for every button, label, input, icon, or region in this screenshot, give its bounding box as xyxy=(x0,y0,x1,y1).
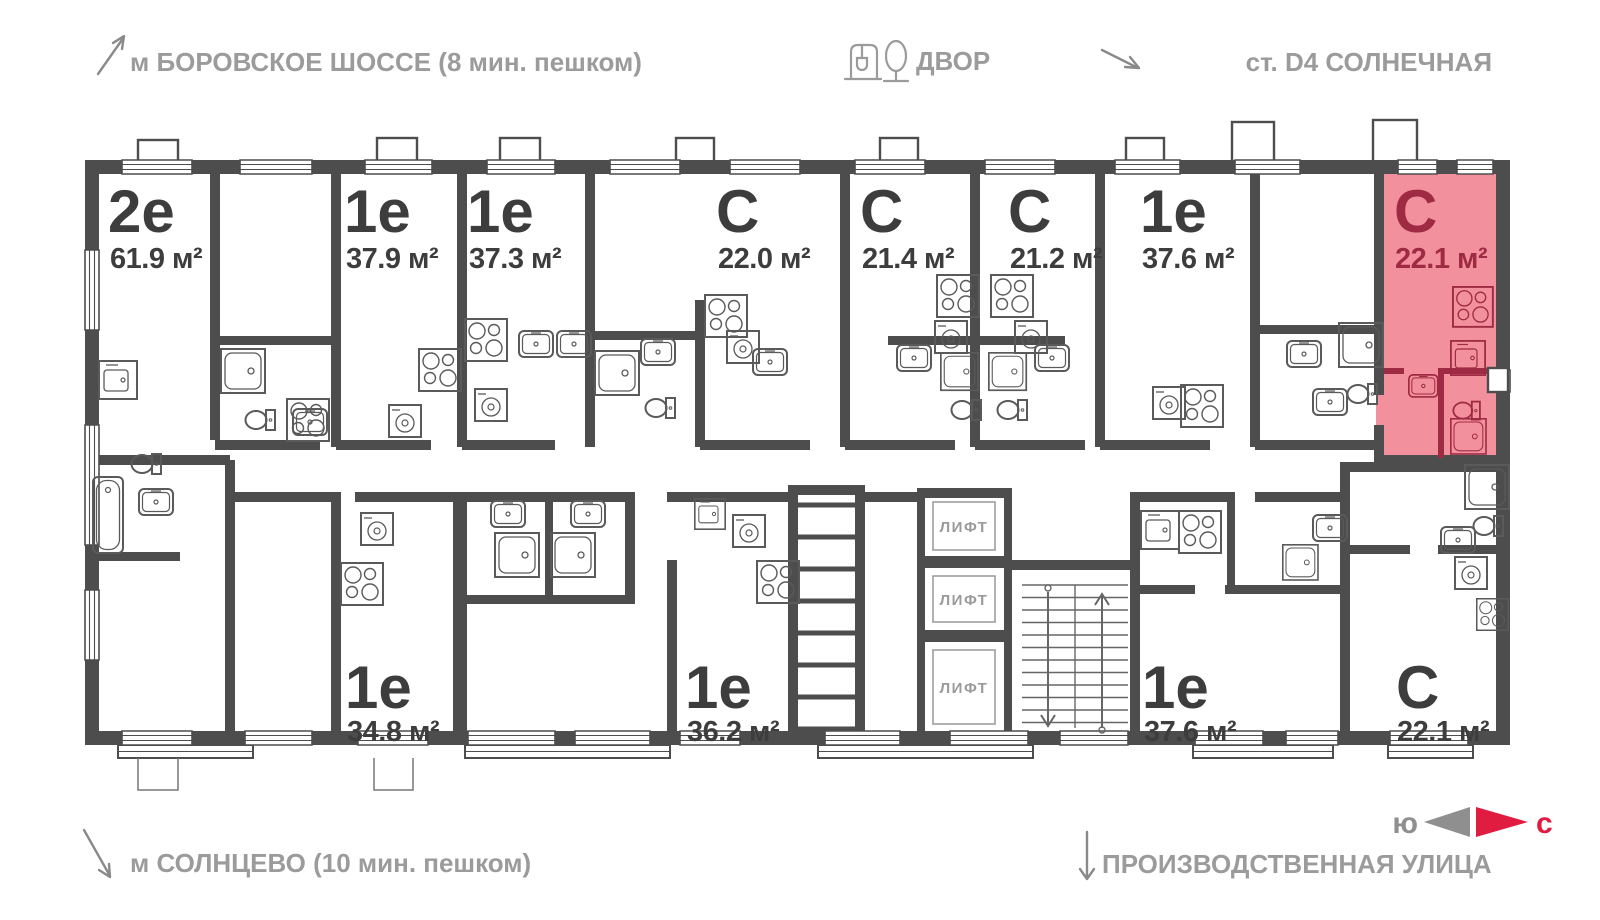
washer-icon xyxy=(389,405,421,437)
door-opening xyxy=(1488,368,1508,392)
facade-protrusions xyxy=(138,120,1417,162)
stove-icon xyxy=(419,349,461,391)
sink-icon xyxy=(139,489,173,515)
apartment-c-21-4[interactable]: С 21.4 м² xyxy=(860,178,955,275)
courtyard-label: ДВОР xyxy=(916,46,990,76)
apartment-area: 22.1 м² xyxy=(1397,716,1490,748)
arrow-down-icon xyxy=(84,830,110,877)
stair-core xyxy=(798,505,1128,733)
floorplan-page: ЛИФТ ЛИФТ ЛИФТ xyxy=(0,0,1600,920)
apartment-type: 1е xyxy=(685,654,752,721)
toilet-icon xyxy=(646,398,676,418)
compass-south-needle xyxy=(1424,807,1470,837)
stove-icon xyxy=(1181,385,1223,427)
dishwasher-icon xyxy=(99,361,137,399)
apartment-area: 21.4 м² xyxy=(862,243,955,275)
apartment-1e-37-6-top[interactable]: 1е 37.6 м² xyxy=(1140,178,1235,275)
apartment-area: 22.1 м² xyxy=(1395,243,1488,275)
apartment-1e-36-2[interactable]: 1е 36.2 м² xyxy=(685,654,780,748)
compass: ю с xyxy=(1392,807,1552,840)
apartment-area: 34.8 м² xyxy=(347,716,440,748)
apartment-1e-37-9[interactable]: 1е 37.9 м² xyxy=(344,178,439,275)
sink-icon xyxy=(519,331,553,357)
sink-icon xyxy=(897,345,931,371)
apartment-area: 21.2 м² xyxy=(1010,243,1103,275)
elevator-label-3: ЛИФТ xyxy=(940,680,989,697)
apartment-c-22-0[interactable]: С 22.0 м² xyxy=(716,178,811,275)
elevator-label-1: ЛИФТ xyxy=(940,519,989,536)
shower-icon xyxy=(595,351,639,395)
washer-icon xyxy=(361,513,393,545)
sink-icon xyxy=(1141,511,1179,549)
sink-icon xyxy=(1441,527,1475,553)
washer-icon xyxy=(475,389,507,421)
apartment-type: 1е xyxy=(1140,178,1207,245)
apartment-type: С xyxy=(860,178,903,245)
apartment-c-22-1-bottom[interactable]: С 22.1 м² xyxy=(1396,654,1490,748)
arrow-down-icon xyxy=(1080,832,1094,879)
apartment-area: 37.3 м² xyxy=(469,243,562,275)
elevator-label-2: ЛИФТ xyxy=(940,592,989,609)
stove-icon xyxy=(1179,511,1221,553)
floorplan-svg: ЛИФТ ЛИФТ ЛИФТ xyxy=(0,0,1600,920)
apartment-type: 1е xyxy=(467,178,534,245)
apartment-type: 1е xyxy=(345,654,412,721)
balcony-strips xyxy=(118,745,1473,790)
stairs-down-arrow xyxy=(1041,592,1055,726)
metro-top-label: м БОРОВСКОЕ ШОССЕ (8 мин. пешком) xyxy=(130,47,642,77)
apartment-type: С xyxy=(1396,654,1439,721)
elevators: ЛИФТ ЛИФТ ЛИФТ xyxy=(933,502,995,724)
annotation-street: ПРОИЗВОДСТВЕННАЯ УЛИЦА xyxy=(1080,832,1492,879)
interior-walls-bottom xyxy=(85,455,1510,745)
washer-icon xyxy=(1455,557,1487,589)
apartment-type: С xyxy=(716,178,759,245)
sink-icon xyxy=(491,501,525,527)
apartment-area: 37.6 м² xyxy=(1142,243,1235,275)
compass-north-label: с xyxy=(1536,807,1553,840)
stairs-up-arrow xyxy=(1095,594,1109,728)
sink-icon xyxy=(571,501,605,527)
apartment-type: 1е xyxy=(1142,654,1209,721)
apartment-1e-34-8[interactable]: 1е 34.8 м² xyxy=(345,654,440,748)
stove-icon xyxy=(465,319,507,361)
apartment-type: С xyxy=(1394,178,1437,245)
arrow-down-right-icon xyxy=(1102,50,1139,68)
compass-south-label: ю xyxy=(1392,807,1418,840)
apartment-type: 2е xyxy=(108,178,175,245)
annotation-station: ст. D4 СОЛНЕЧНАЯ xyxy=(1102,47,1492,77)
shower-icon xyxy=(551,533,595,577)
stove-icon xyxy=(341,563,383,605)
arrow-up-icon xyxy=(98,36,124,74)
apartment-area: 37.9 м² xyxy=(346,243,439,275)
sink-icon xyxy=(695,499,725,529)
apartment-c-21-2[interactable]: С 21.2 м² xyxy=(1008,178,1103,275)
apartment-area: 22.0 м² xyxy=(718,243,811,275)
sink-icon xyxy=(641,339,675,365)
station-label: ст. D4 СОЛНЕЧНАЯ xyxy=(1246,47,1492,77)
apartment-area: 36.2 м² xyxy=(687,716,780,748)
metro-bottom-label: м СОЛНЦЕВО (10 мин. пешком) xyxy=(130,848,531,878)
sink-icon xyxy=(1287,341,1321,367)
apartment-1e-37-6-bottom[interactable]: 1е 37.6 м² xyxy=(1142,654,1237,748)
apartment-type: 1е xyxy=(344,178,411,245)
annotation-courtyard: ДВОР xyxy=(845,41,990,81)
apartment-area: 61.9 м² xyxy=(110,243,203,275)
shower-icon xyxy=(1283,545,1318,580)
apartment-2e-61-9[interactable]: 2е 61.9 м² xyxy=(108,178,203,275)
courtyard-icon xyxy=(845,41,908,81)
annotation-metro-top: м БОРОВСКОЕ ШОССЕ (8 мин. пешком) xyxy=(98,36,642,77)
washer-icon xyxy=(727,331,759,363)
toilet-icon xyxy=(246,410,276,430)
apartment-area: 37.6 м² xyxy=(1144,716,1237,748)
shower-icon xyxy=(495,533,539,577)
toilet-icon xyxy=(1348,384,1378,404)
annotation-metro-bottom: м СОЛНЦЕВО (10 мин. пешком) xyxy=(84,830,531,878)
street-label: ПРОИЗВОДСТВЕННАЯ УЛИЦА xyxy=(1102,849,1492,879)
apartment-type: С xyxy=(1008,178,1051,245)
apartment-1e-37-3[interactable]: 1е 37.3 м² xyxy=(467,178,562,275)
compass-north-needle xyxy=(1476,807,1528,837)
sink-icon xyxy=(1313,389,1347,415)
washer-icon xyxy=(733,515,765,547)
stove-icon xyxy=(991,275,1033,317)
shower-icon xyxy=(221,349,265,393)
shower-icon xyxy=(989,353,1026,390)
toilet-icon xyxy=(998,400,1028,420)
sink-icon xyxy=(1035,345,1069,371)
